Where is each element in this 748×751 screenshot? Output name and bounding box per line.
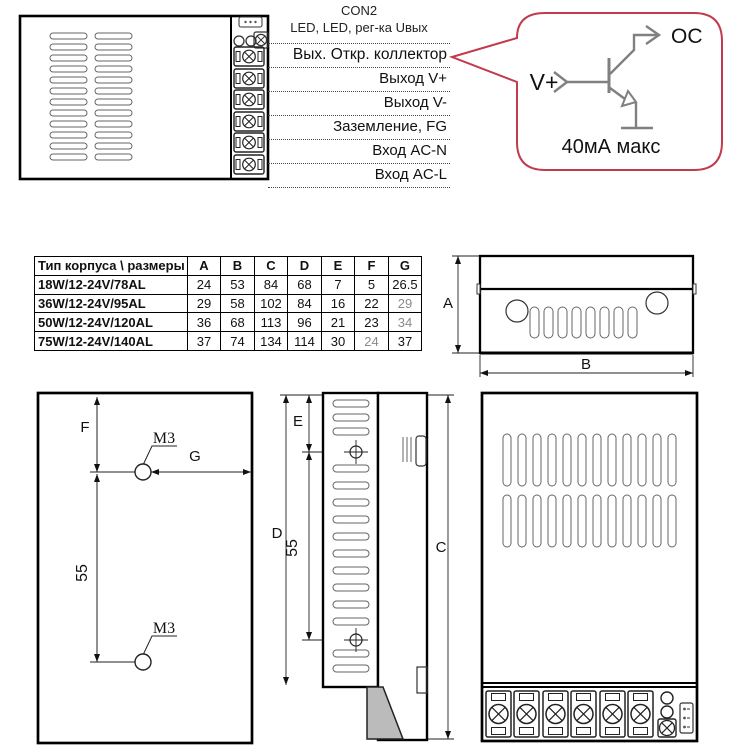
dim-value: 21 (321, 313, 355, 332)
dim-value: 29 (388, 294, 422, 313)
base-plate-outline (38, 393, 252, 743)
dim-value: 30 (321, 332, 355, 351)
pin-label-ac-l: Вход AC-L (268, 164, 450, 188)
col-header-g: G (388, 257, 422, 276)
pin-label-fg: Заземление, FG (268, 116, 450, 140)
dim-value: 29 (187, 294, 221, 313)
dim-value: 58 (221, 294, 255, 313)
table-row: 50W/12-24V/120AL 36 68 113 96 21 23 34 (35, 313, 422, 332)
dim-value: 34 (388, 313, 422, 332)
dim-value: 53 (221, 275, 255, 294)
col-header-c: C (254, 257, 288, 276)
dim-value: 134 (254, 332, 288, 351)
dim-value: 68 (288, 275, 322, 294)
callout-current-note: 40мА макс (562, 136, 661, 158)
table-row: 18W/12-24V/78AL 24 53 84 68 7 5 26.5 (35, 275, 422, 294)
dim-value: 26.5 (388, 275, 422, 294)
mounting-hole-m3 (135, 464, 151, 480)
dim-value: 23 (355, 313, 389, 332)
dim-value: 16 (321, 294, 355, 313)
callout-output-label: OC (671, 25, 703, 48)
dim-label-55: 55 (284, 539, 301, 557)
dim-value: 5 (355, 275, 389, 294)
dim-value: 36 (187, 313, 221, 332)
technical-datasheet: CON2 LED, LED, рег-ка Uвых Вых. Откр. ко… (0, 0, 748, 751)
table-row: 36W/12-24V/95AL 29 58 102 84 16 22 29 (35, 294, 422, 313)
callout-input-label: V+ (530, 69, 559, 95)
table-corner-cell: Тип корпуса \ размеры (35, 257, 188, 276)
dim-value: 24 (355, 332, 389, 351)
dim-value: 24 (187, 275, 221, 294)
dim-label-f: F (80, 419, 89, 436)
profile-view-drawing: D E 55 C (270, 388, 455, 750)
thread-label-m3: M3 (153, 620, 175, 637)
col-header-b: B (221, 257, 255, 276)
model-label: 50W/12-24V/120AL (35, 313, 188, 332)
dim-value: 84 (288, 294, 322, 313)
connector-subtitle: LED, LED, рег-ка Uвых (262, 20, 456, 35)
dim-value: 96 (288, 313, 322, 332)
dim-label-g: G (189, 448, 201, 465)
col-header-e: E (321, 257, 355, 276)
model-label: 36W/12-24V/95AL (35, 294, 188, 313)
dim-value: 37 (388, 332, 422, 351)
dim-label-b: B (581, 356, 591, 373)
model-label: 75W/12-24V/140AL (35, 332, 188, 351)
col-header-d: D (288, 257, 322, 276)
pin-label-open-collector: Вых. Откр. коллектор (268, 44, 450, 68)
pin-label-vplus: Выход V+ (268, 68, 450, 92)
mounting-hole-m3 (135, 654, 151, 670)
dim-label-d: D (272, 525, 283, 542)
dim-value: 102 (254, 294, 288, 313)
table-header-row: Тип корпуса \ размеры A B C D E F G (35, 257, 422, 276)
dim-label-a: A (443, 295, 453, 312)
dim-value: 22 (355, 294, 389, 313)
dimensions-table: Тип корпуса \ размеры A B C D E F G 18W/… (34, 256, 422, 351)
dim-label-c: C (436, 539, 447, 556)
enclosure-outline (482, 393, 697, 741)
table-row: 75W/12-24V/140AL 37 74 134 114 30 24 37 (35, 332, 422, 351)
pin-label-list: Вых. Откр. коллектор Выход V+ Выход V- З… (268, 43, 450, 188)
dim-label-e: E (293, 413, 303, 430)
side-view-drawing: A B (440, 248, 702, 380)
dim-value: 114 (288, 332, 322, 351)
dim-value: 113 (254, 313, 288, 332)
thread-label-m3: M3 (153, 430, 175, 447)
front-view-drawing (475, 388, 707, 748)
open-collector-callout: V+ OC 40мА макс (450, 0, 748, 185)
pin-label-ac-n: Вход AC-N (268, 140, 450, 164)
pin-labels: CON2 LED, LED, рег-ка Uвых Вых. Откр. ко… (268, 0, 450, 190)
dim-label-55: 55 (74, 564, 91, 582)
psu-top-view-drawing (18, 13, 272, 183)
col-header-f: F (355, 257, 389, 276)
col-header-a: A (187, 257, 221, 276)
connector-title: CON2 (268, 3, 450, 18)
enclosure-outline (480, 256, 693, 353)
dim-value: 84 (254, 275, 288, 294)
pin-label-vminus: Выход V- (268, 92, 450, 116)
dim-value: 7 (321, 275, 355, 294)
dim-value: 68 (221, 313, 255, 332)
model-label: 18W/12-24V/78AL (35, 275, 188, 294)
mounting-layout-drawing: F G 55 M3 M3 (30, 388, 260, 750)
dim-value: 37 (187, 332, 221, 351)
dim-value: 74 (221, 332, 255, 351)
